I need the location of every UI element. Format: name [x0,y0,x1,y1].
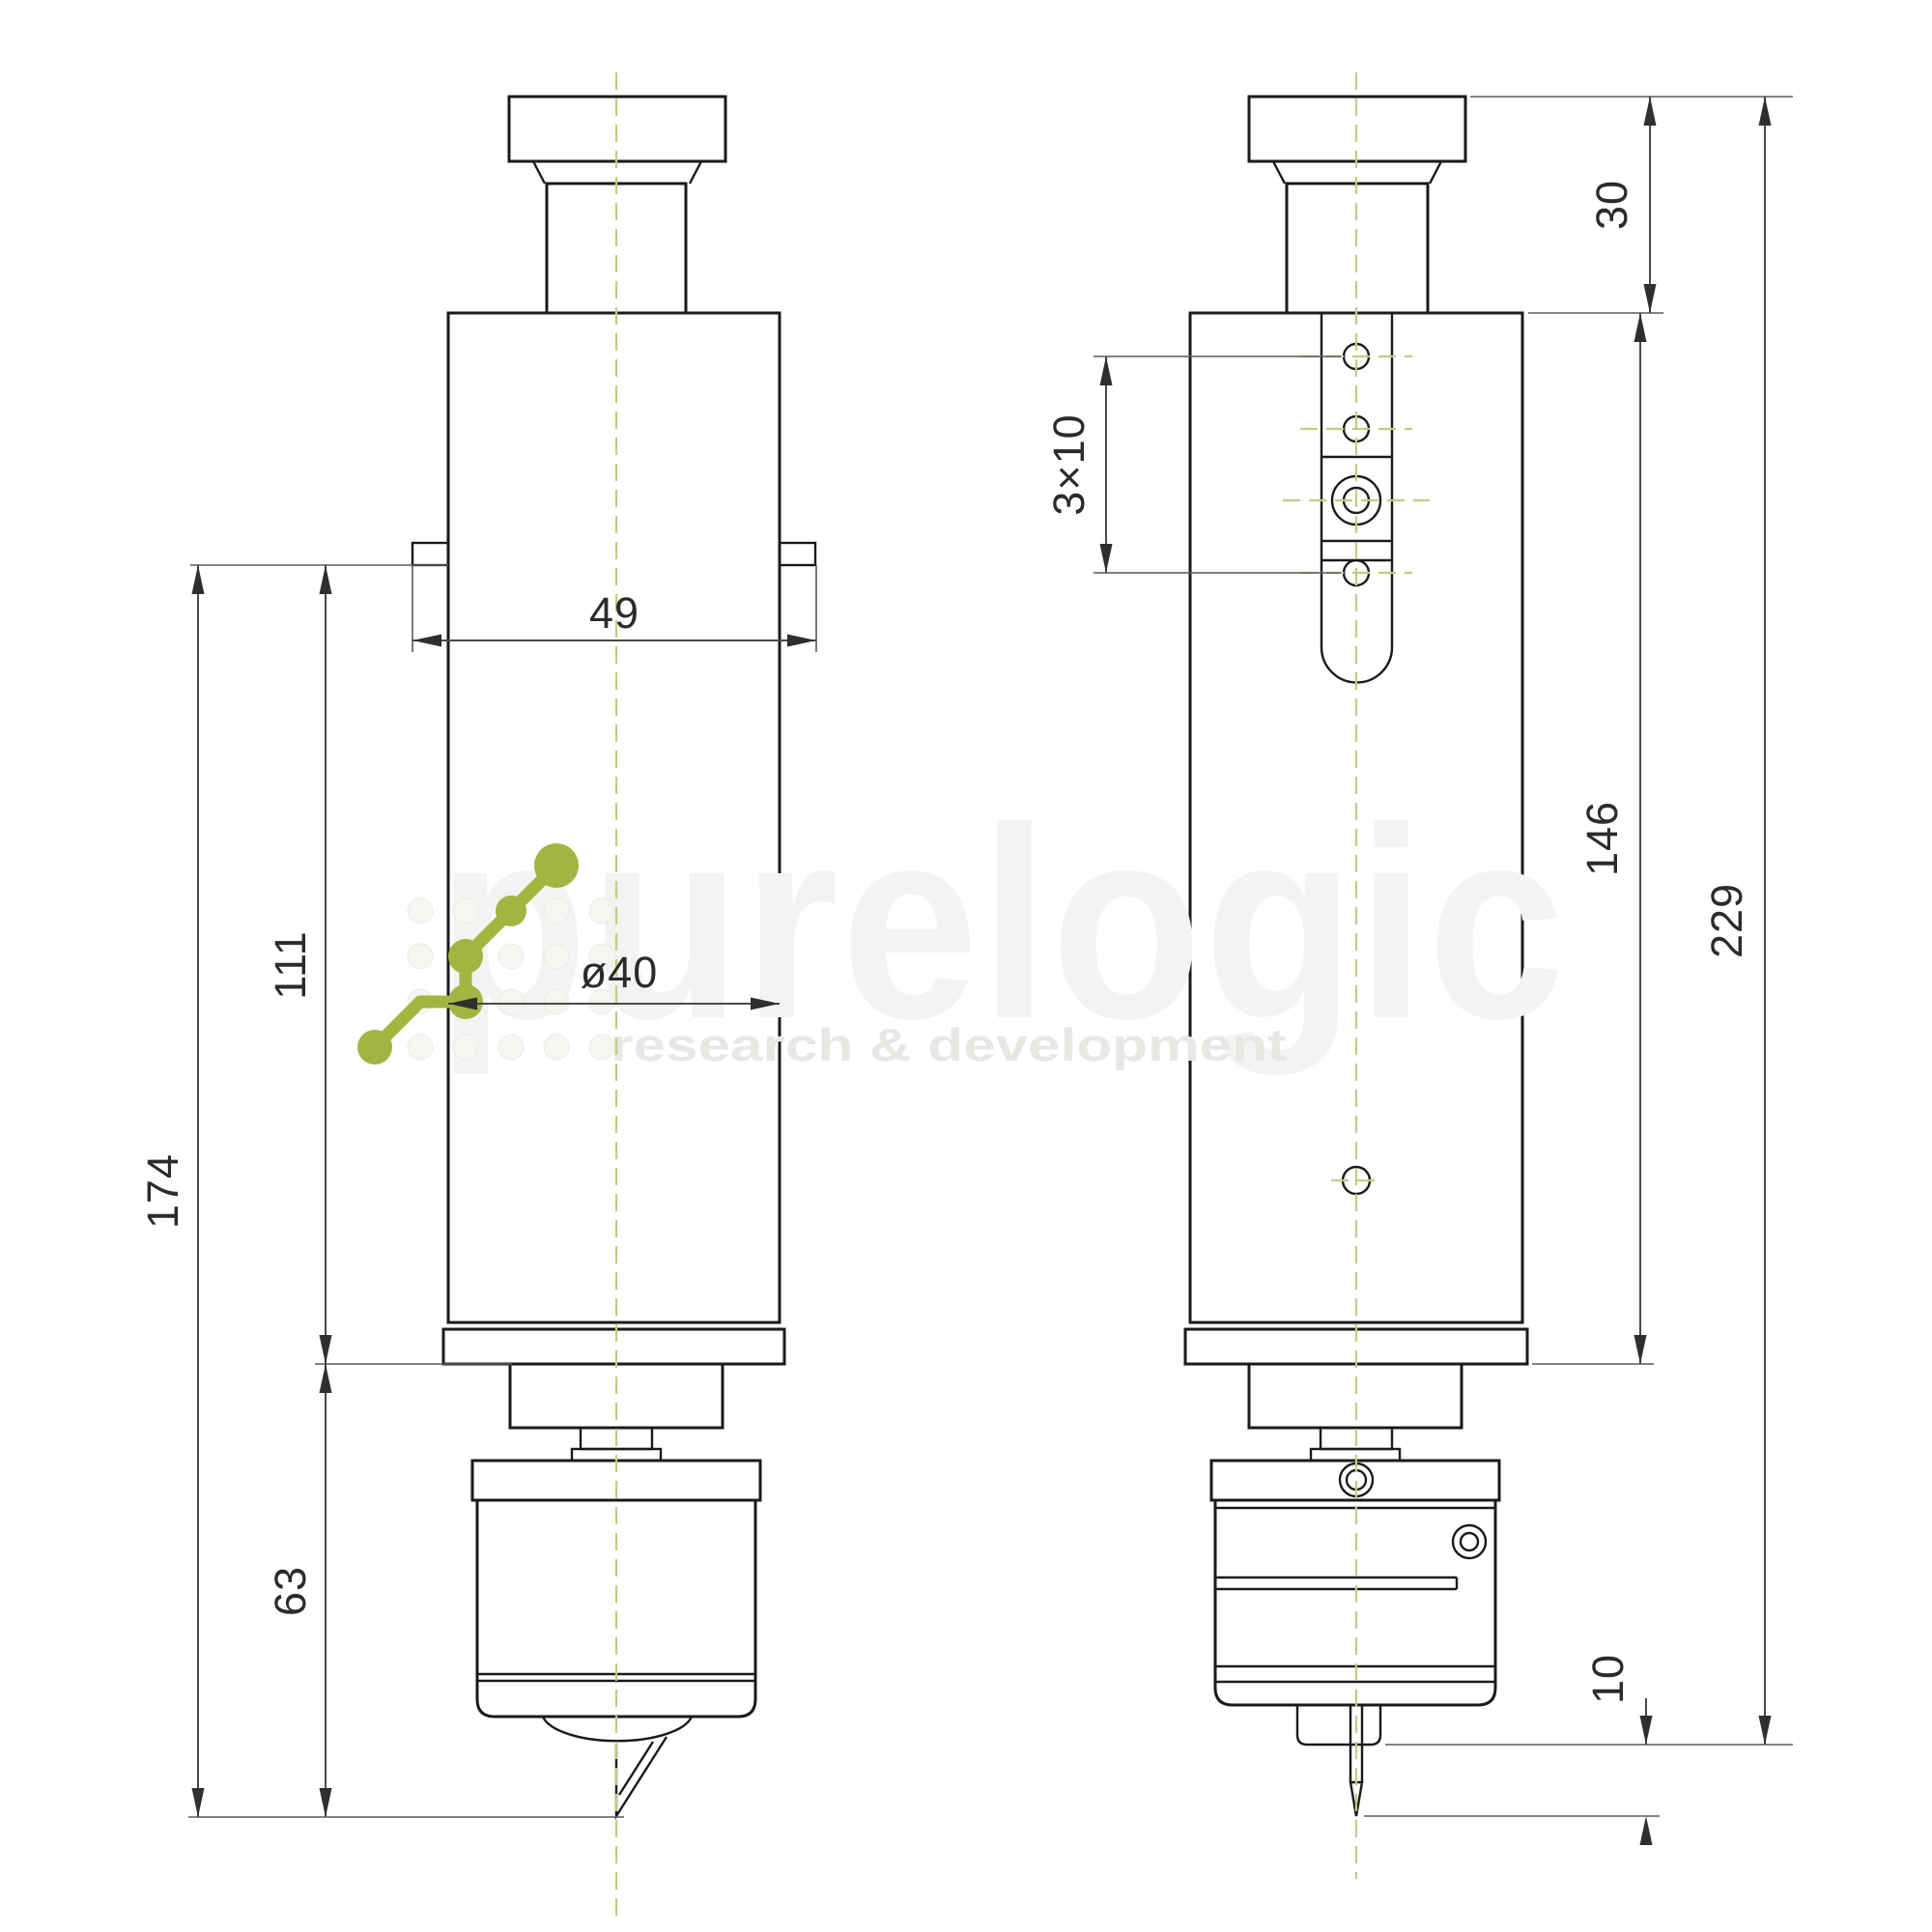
watermark: purelogic research & development [437,771,1567,1077]
drawing-page: purelogic research & development [0,0,1932,1932]
dim-label-146: 146 [1577,801,1627,876]
dim-label-3x10: 3×10 [1044,413,1094,515]
front-flange-plate [443,1329,784,1364]
side-screw-right-outer [1453,1525,1486,1558]
dim-cap-height: 30 [1587,97,1657,313]
dim-label-174: 174 [138,1153,187,1229]
side-cap-chamfer-right [1430,161,1441,184]
front-holder-main [477,1500,755,1717]
dim-label-63: 63 [266,1566,315,1616]
dim-label-49: 49 [589,588,639,638]
dim-label-111: 111 [266,930,315,999]
front-blade [616,1737,667,1816]
front-tab-left [412,543,448,565]
dim-total-front-height: 174 [138,565,205,1817]
dim-label-40: ø40 [581,948,659,997]
side-needle-holder [1297,1705,1380,1745]
technical-drawing: purelogic research & development [0,0,1932,1932]
front-cap-chamfer-right [690,161,701,184]
dim-label-30: 30 [1587,180,1636,230]
front-tab-right [780,543,815,565]
side-screw-right-inner [1461,1533,1478,1550]
dim-label-10: 10 [1583,1654,1633,1704]
dim-body-height: 146 [1577,313,1647,1364]
dim-body-lower-height: 111 [266,565,332,1364]
dim-hole-spacing: 3×10 [1044,356,1113,573]
dim-total-height: 229 [1702,97,1772,1745]
dim-label-229: 229 [1702,883,1751,958]
dim-width-across-tabs: 49 [412,588,816,647]
side-cap-chamfer-left [1273,161,1285,184]
watermark-tagline: research & development [611,1019,1287,1070]
dim-holder-height: 63 [266,1364,332,1817]
front-cap-chamfer-left [533,161,545,184]
